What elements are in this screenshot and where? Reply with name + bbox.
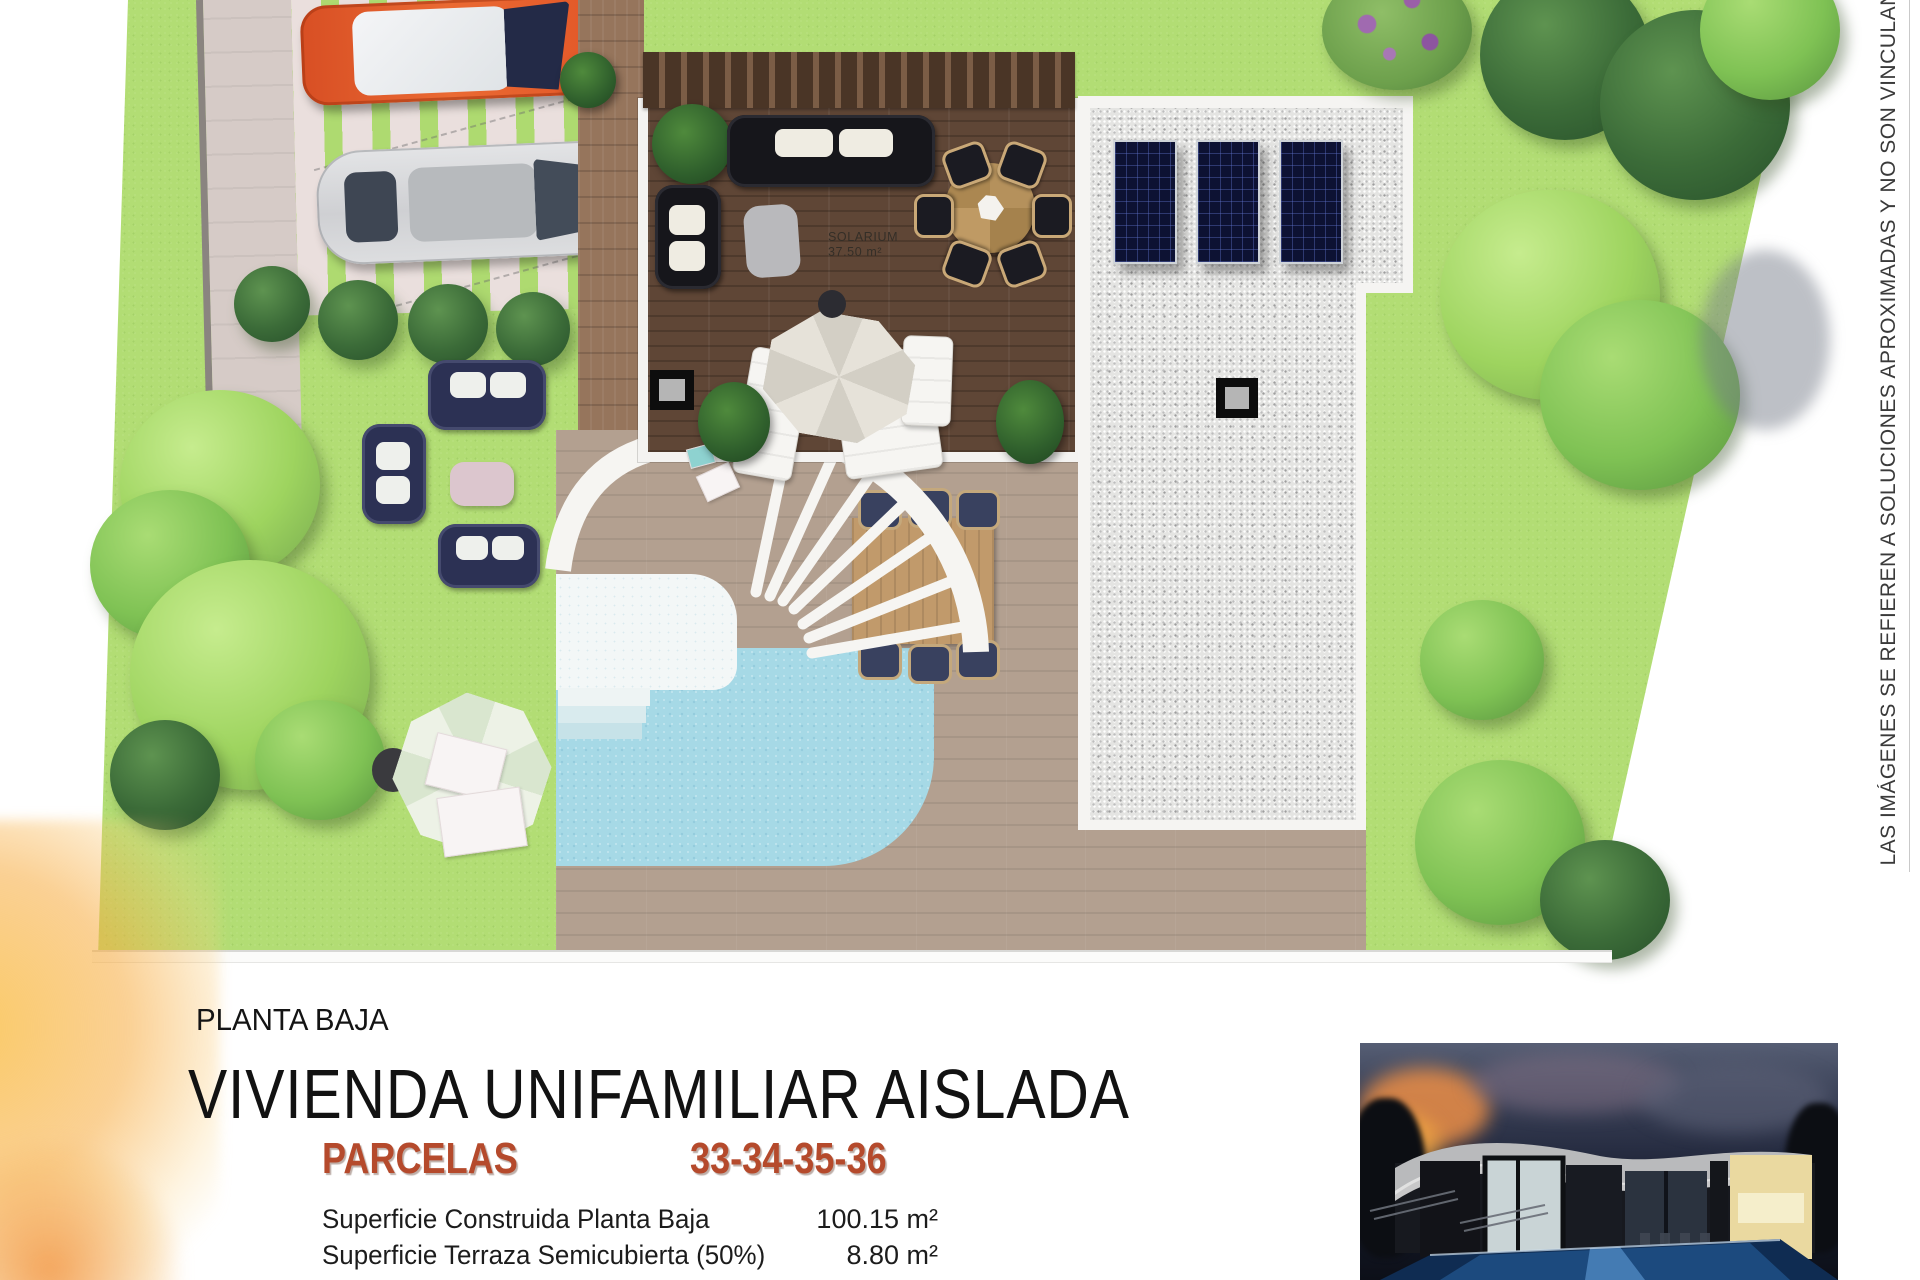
car-roof xyxy=(408,163,539,242)
skylight-hatch xyxy=(650,370,694,410)
dining-chair xyxy=(858,490,902,530)
deck-bush xyxy=(698,382,770,462)
deck-sofa xyxy=(727,115,935,187)
deck-rug xyxy=(743,203,802,279)
disclaimer-label: LAS IMÁGENES SE REFIEREN A SOLUCIONES AP… xyxy=(1877,0,1901,866)
dining-chair xyxy=(908,488,952,528)
garden-tree xyxy=(1420,600,1544,720)
dining-chair xyxy=(908,644,952,684)
outdoor-dining-table xyxy=(852,518,994,644)
area-row-value: 8.80 m² xyxy=(738,1240,938,1271)
area-row-label: Superficie Construida Planta Baja xyxy=(322,1204,710,1235)
solar-panel xyxy=(1113,140,1177,264)
hedge-tree xyxy=(318,280,398,360)
dining-chair xyxy=(956,640,1000,680)
parcels-numbers: 33-34-35-36 xyxy=(690,1134,887,1184)
deck-plant xyxy=(652,104,732,184)
tree-shadow xyxy=(1700,250,1830,430)
wicker-chair xyxy=(914,194,954,238)
wicker-chair xyxy=(1032,194,1072,238)
solarium-area: 37.50 m² xyxy=(828,245,958,260)
villa-night-photo xyxy=(1360,1043,1838,1280)
skylight-hatch xyxy=(1216,378,1258,418)
garden-tree xyxy=(110,720,220,830)
table-centerpiece xyxy=(973,191,1008,226)
garden-sofa xyxy=(428,360,546,430)
hedge-tree xyxy=(234,266,310,342)
garden-sofa xyxy=(362,424,426,524)
garden-tree xyxy=(1540,840,1670,960)
pool-step xyxy=(558,706,646,723)
deck-sofa xyxy=(655,185,721,289)
garden-sofa xyxy=(438,524,540,588)
garden-tree xyxy=(255,700,385,820)
plan-border-line xyxy=(92,950,1612,963)
parasol-lounger xyxy=(436,786,528,857)
dining-chair xyxy=(858,640,902,680)
garden-bush xyxy=(560,52,616,108)
dining-chair xyxy=(956,490,1000,530)
villa-illustration xyxy=(1360,1043,1838,1280)
hedge-tree xyxy=(408,284,488,364)
pool-step xyxy=(558,688,650,706)
solar-panel xyxy=(1196,140,1260,264)
solar-panel xyxy=(1279,140,1343,264)
area-row-label: Superficie Terraza Semicubierta (50%) xyxy=(322,1240,765,1271)
parcels-label: PARCELAS xyxy=(322,1134,518,1184)
car-roof xyxy=(352,6,513,97)
margin-rule xyxy=(1909,0,1910,872)
skylight-glass xyxy=(1225,387,1249,409)
umbrella-pole xyxy=(818,290,846,318)
deck-bush xyxy=(996,380,1064,464)
garden-ottoman xyxy=(450,462,514,506)
area-row-value: 100.15 m² xyxy=(738,1204,938,1235)
pool-step xyxy=(558,723,642,739)
skylight-glass xyxy=(659,379,685,401)
page-title: VIVIENDA UNIFAMILIAR AISLADA xyxy=(188,1054,1130,1134)
pergola-slats xyxy=(643,52,1075,108)
car-rear-window xyxy=(344,171,399,243)
brochure-page: SOLARIUM 37.50 m² xyxy=(0,0,1920,1280)
hedge-tree xyxy=(496,292,570,366)
floor-caption: PLANTA BAJA xyxy=(196,1002,389,1038)
pool-beach-entry xyxy=(556,574,737,690)
disclaimer-text: LAS IMÁGENES SE REFIEREN A SOLUCIONES AP… xyxy=(1872,0,1906,866)
pool-deck xyxy=(1085,830,1366,958)
